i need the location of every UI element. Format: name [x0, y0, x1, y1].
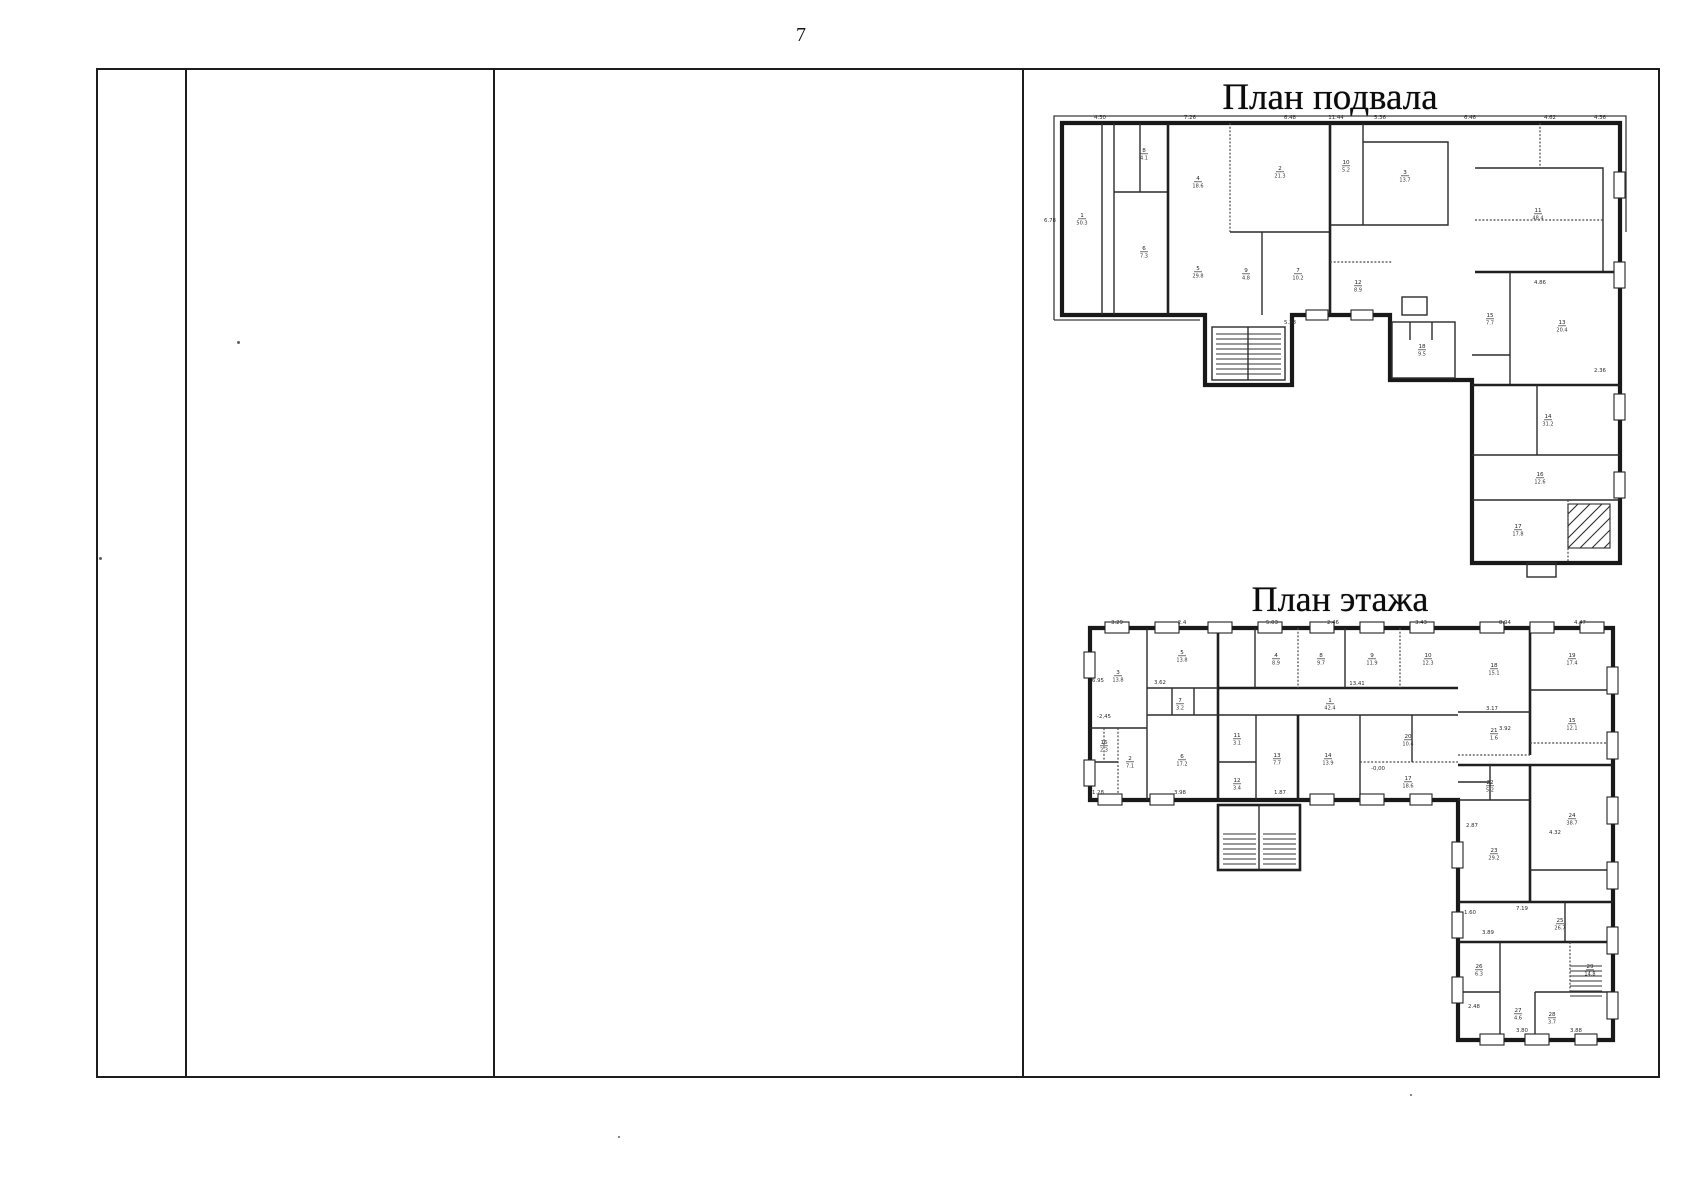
- room-area: 7.3: [1140, 254, 1148, 260]
- dimension-label: 4.62: [1544, 115, 1556, 121]
- room-area: 29.8: [1192, 274, 1203, 280]
- room-area: 4.1: [1140, 156, 1148, 162]
- room-area: 17.2: [1176, 762, 1187, 768]
- room-area: 12.1: [1566, 726, 1577, 732]
- floor-entrance-porch: [1218, 805, 1300, 870]
- room-number: 29: [1586, 964, 1594, 970]
- room-number: 9: [1244, 268, 1248, 274]
- room-area: 13.7: [1399, 178, 1410, 184]
- room-number: 14: [1324, 753, 1332, 759]
- room-area: 20.4: [1556, 328, 1567, 334]
- room-area: 9.7: [1317, 661, 1325, 667]
- room-number: 13: [1558, 320, 1566, 326]
- room-number: 6: [1180, 754, 1184, 760]
- room-number: 1: [1080, 213, 1084, 219]
- room-area: 26.7: [1554, 926, 1565, 932]
- dimension-label: 2.48: [1468, 1004, 1481, 1010]
- room-area: 50.3: [1076, 221, 1087, 227]
- room-area: 38.7: [1566, 821, 1577, 827]
- room-number: 7: [1296, 268, 1300, 274]
- dimension-label: 2.46: [1327, 620, 1340, 626]
- room-area: 8.9: [1272, 661, 1280, 667]
- room-area: 18.6: [1402, 784, 1413, 790]
- room-number: 25: [1556, 918, 1564, 924]
- room-area: 5.2: [1486, 788, 1494, 794]
- dimension-label: 4.32: [1549, 830, 1561, 836]
- scan-speck: [237, 341, 240, 344]
- dimension-label: 3.80: [1516, 1028, 1529, 1034]
- dimension-label: 5.36: [1374, 115, 1387, 121]
- room-area: 9.5: [1418, 352, 1426, 358]
- room-number: 3: [1403, 170, 1407, 176]
- room-area: 13.8: [1112, 678, 1123, 684]
- basement-inner-walls: [1102, 123, 1620, 563]
- document-page: 7 План подвала План этажа: [0, 0, 1697, 1200]
- floor-inner-walls: [1090, 628, 1613, 1040]
- room-area: 12.6: [1534, 480, 1545, 486]
- dimension-label: 3.92: [1499, 726, 1511, 732]
- room-number: 11: [1233, 733, 1241, 739]
- dimension-label: 5.03: [1266, 620, 1278, 626]
- dimension-label: -0,00: [1371, 766, 1386, 772]
- room-number: 16: [1536, 472, 1544, 478]
- basement-dimension-labels: 11.444.307.266.485.366.464.624.366.784.8…: [1044, 115, 1607, 374]
- basement-plan-drawing: 150.384.167.3418.6529.8221.394.8710.2105…: [1040, 112, 1640, 592]
- room-number: 10: [1342, 160, 1350, 166]
- room-number: 9: [1370, 653, 1374, 659]
- room-number: 10: [1424, 653, 1432, 659]
- dimension-label: 5.28: [1284, 320, 1297, 326]
- dimension-label: 6.95: [1092, 678, 1104, 684]
- room-area: 4.6: [1514, 1016, 1522, 1022]
- room-number: 7: [1178, 698, 1182, 704]
- room-number: 15: [1486, 313, 1494, 319]
- room-area: 2.3: [1100, 748, 1108, 754]
- room-area: 3.7: [1548, 1020, 1556, 1026]
- room-area: 3.1: [1233, 741, 1241, 747]
- page-number: 7: [786, 24, 816, 47]
- dimension-label: 11.44: [1328, 115, 1344, 121]
- room-number: 17: [1404, 776, 1412, 782]
- basement-room-labels: 150.384.167.3418.6529.8221.394.8710.2105…: [1076, 148, 1567, 538]
- table-column-divider: [1022, 70, 1024, 1076]
- room-number: 18: [1490, 663, 1498, 669]
- room-area: 10.2: [1292, 276, 1303, 282]
- dimension-label: 2.4: [1178, 620, 1187, 626]
- dimension-label: 3.89: [1482, 930, 1495, 936]
- dimension-label: 1.60: [1464, 910, 1477, 916]
- room-number: 12: [1354, 280, 1361, 286]
- room-number: 18: [1418, 344, 1426, 350]
- room-number: 6: [1142, 246, 1146, 252]
- room-number: 4: [1274, 653, 1278, 659]
- room-area: 11.9: [1366, 661, 1377, 667]
- room-number: 23: [1490, 848, 1498, 854]
- room-area: 14.8: [1584, 972, 1595, 978]
- room-area: 12.3: [1422, 661, 1433, 667]
- dimension-label: 7.19: [1516, 906, 1529, 912]
- scan-speck: [1410, 1094, 1412, 1096]
- scan-speck: [618, 1136, 620, 1138]
- dimension-label: 3.29: [1111, 620, 1124, 626]
- floor-room-labels: 142.427.1313.848.9513.8617.273.289.7911.…: [1100, 650, 1596, 1026]
- dimension-label: 3.17: [1486, 706, 1498, 712]
- room-number: 8: [1319, 653, 1323, 659]
- room-number: 8: [1142, 148, 1146, 154]
- room-area: 17.4: [1566, 661, 1577, 667]
- room-area: 17.8: [1512, 532, 1523, 538]
- dimension-label: 3.98: [1174, 790, 1187, 796]
- room-number: 5: [1180, 650, 1184, 656]
- dimension-label: 6.78: [1044, 218, 1057, 224]
- dimension-label: 1.87: [1274, 790, 1286, 796]
- room-area: 13.9: [1322, 761, 1333, 767]
- floor-plan-drawing: 142.427.1313.848.9513.8617.273.289.7911.…: [1060, 612, 1660, 1062]
- room-number: 12: [1233, 778, 1240, 784]
- room-area: 6.3: [1475, 972, 1483, 978]
- room-number: 22: [1486, 780, 1493, 786]
- room-number: 27: [1514, 1008, 1522, 1014]
- dimension-label: 3.43: [1415, 620, 1427, 626]
- room-area: 31.2: [1542, 422, 1553, 428]
- room-area: 7.7: [1486, 321, 1494, 327]
- room-area: 48.4: [1532, 216, 1543, 222]
- dimension-label: 4.36: [1594, 115, 1607, 121]
- room-area: 7.1: [1126, 764, 1134, 770]
- table-column-divider: [185, 70, 187, 1076]
- room-number: 24: [1568, 813, 1576, 819]
- room-number: 11: [1534, 208, 1542, 214]
- room-area: 3.2: [1176, 706, 1184, 712]
- dimension-label: 2.87: [1466, 823, 1478, 829]
- room-area: 29.2: [1488, 856, 1499, 862]
- room-number: 5: [1196, 266, 1200, 272]
- basement-stairwell: [1212, 327, 1285, 380]
- dimension-label: 2.36: [1594, 368, 1607, 374]
- room-area: 4.8: [1242, 276, 1250, 282]
- room-number: 16: [1100, 740, 1108, 746]
- room-area: 7.7: [1273, 761, 1281, 767]
- room-area: 42.4: [1324, 706, 1335, 712]
- room-area: 18.6: [1192, 184, 1203, 190]
- basement-hatched-area: [1568, 504, 1610, 548]
- room-number: 20: [1404, 734, 1412, 740]
- dimension-label: 4.47: [1574, 620, 1586, 626]
- dimension-label: 4.30: [1094, 115, 1107, 121]
- room-number: 2: [1128, 756, 1132, 762]
- room-number: 17: [1514, 524, 1522, 530]
- dimension-label: 8.94: [1499, 620, 1512, 626]
- dimension-label: 3.62: [1154, 680, 1166, 686]
- room-number: 15: [1568, 718, 1576, 724]
- room-area: 10.4: [1402, 742, 1413, 748]
- dimension-label: 4.86: [1534, 280, 1547, 286]
- room-number: 14: [1544, 414, 1552, 420]
- basement-windows: [1306, 172, 1625, 498]
- room-area: 1.6: [1490, 736, 1498, 742]
- dimension-label: 13.41: [1349, 681, 1364, 687]
- room-number: 2: [1278, 166, 1282, 172]
- room-number: 4: [1196, 176, 1200, 182]
- room-number: 19: [1568, 653, 1576, 659]
- room-area: 13.8: [1176, 658, 1187, 664]
- room-number: 28: [1548, 1012, 1556, 1018]
- scan-speck: [99, 557, 102, 560]
- dimension-label: 1.28: [1092, 790, 1105, 796]
- table-column-divider: [493, 70, 495, 1076]
- room-area: 21.3: [1274, 174, 1285, 180]
- room-area: 15.1: [1488, 671, 1499, 677]
- room-number: 13: [1273, 753, 1281, 759]
- room-number: 1: [1328, 698, 1332, 704]
- room-number: 26: [1475, 964, 1483, 970]
- dimension-label: 7.26: [1184, 115, 1197, 121]
- room-number: 21: [1490, 728, 1498, 734]
- dimension-label: 3.88: [1570, 1028, 1583, 1034]
- dimension-label: -2,45: [1097, 714, 1111, 720]
- room-area: 3.4: [1233, 786, 1241, 792]
- room-area: 5.2: [1342, 168, 1350, 174]
- room-number: 3: [1116, 670, 1120, 676]
- dimension-label: 6.48: [1284, 115, 1297, 121]
- dimension-label: 6.46: [1464, 115, 1477, 121]
- floor-dimension-labels: 3.292.45.032.463.438.944.476.953.6213.41…: [1092, 620, 1586, 1034]
- room-area: 8.9: [1354, 288, 1362, 294]
